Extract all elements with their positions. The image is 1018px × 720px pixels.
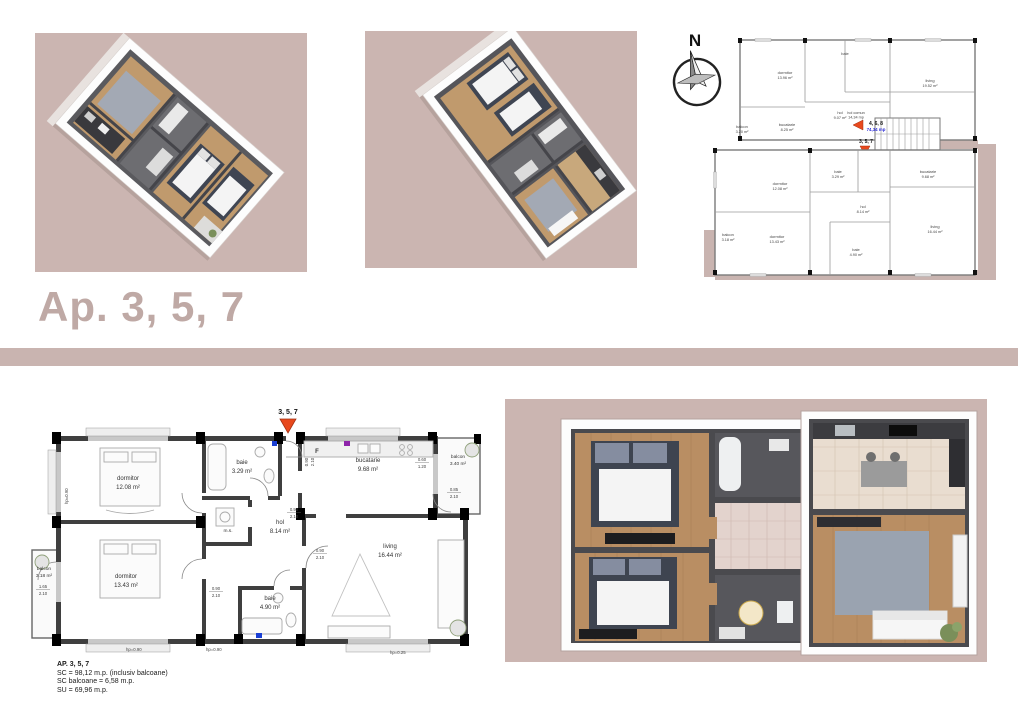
dim-width: 0.90	[290, 507, 299, 512]
site-key-plan: N	[660, 22, 1013, 290]
room-area: 19.52 m²	[923, 84, 939, 88]
dim-height: 2.10	[316, 555, 325, 560]
room-label: bucatarie	[920, 169, 937, 174]
render-3d-iso-2-canvas	[365, 31, 637, 268]
details-su: SU = 69,96 m.p.	[57, 687, 168, 696]
page-title: Ap. 3, 5, 7	[38, 283, 245, 331]
room-area: 16.44 m²	[378, 553, 402, 559]
room-label: baie	[834, 169, 842, 174]
room-label: baie	[852, 247, 860, 252]
room-area: 4.90 m²	[260, 605, 280, 611]
render-3d-top-canvas	[505, 399, 987, 662]
render-top-left-block	[561, 419, 809, 651]
balconies	[32, 438, 480, 638]
room-area: 3.18 m²	[722, 238, 736, 242]
room-label: dormitor	[773, 181, 788, 186]
dim-width: 0.60	[418, 457, 427, 462]
fridge-label: F	[315, 449, 319, 455]
parapet-note: hp=0.90	[206, 647, 222, 652]
site-key-plan-canvas: N	[660, 22, 1013, 290]
entrance-marker: 3, 5, 7	[278, 409, 298, 433]
details-sc-balcoane: SC balcoane = 6,58 m.p.	[57, 678, 168, 687]
dim-height: 1.20	[418, 464, 427, 469]
room-label: balcon	[722, 232, 734, 237]
render-top-right-block	[801, 411, 977, 655]
details-sc: SC = 98,12 m.p. (inclusiv balcoane)	[57, 670, 168, 679]
room-area: 12.08 m²	[116, 485, 140, 491]
room-area: 3.18 m²	[36, 573, 53, 579]
unit-357-id: 3, 5, 7	[859, 139, 873, 145]
common-hall-area: 14,34 mp	[848, 116, 864, 120]
entrance-label: 3, 5, 7	[278, 409, 298, 416]
electrical-panel-mark	[344, 441, 350, 446]
room-area: 3.40 m²	[450, 461, 467, 467]
dim-height: 2.10	[212, 593, 221, 598]
room-label: hol	[276, 520, 284, 526]
entrance-arrow-icon	[280, 419, 296, 433]
parapet-note: hp=0.90	[126, 647, 142, 652]
lower-unit-plan: dormitor 12.08 m² baie 3.29 m² bucatarie…	[713, 148, 977, 277]
dim-height: 2.10	[450, 494, 459, 499]
stair-core	[875, 118, 940, 150]
compass-north-icon: N	[668, 31, 724, 109]
floor-plan-2d-canvas: 3, 5, 7	[28, 392, 493, 664]
details-title: AP. 3, 5, 7	[57, 661, 168, 670]
render-3d-top	[505, 399, 987, 662]
floor-plan-2d: 3, 5, 7	[28, 392, 493, 664]
room-label: balcon	[37, 566, 51, 572]
room-label: dormitor	[117, 476, 139, 482]
dim-height: 2.10	[310, 457, 315, 466]
room-area: 12.08 m²	[773, 187, 789, 191]
room-area: 9.68 m²	[922, 175, 936, 179]
room-area: 9.07 m²	[834, 116, 848, 120]
room-label: m.s.	[223, 529, 232, 534]
room-label: baie	[236, 460, 248, 466]
room-label: living	[383, 544, 397, 550]
room-label: living	[930, 224, 939, 229]
room-area: 13.43 m²	[770, 240, 786, 244]
room-label: dormitor	[770, 234, 785, 239]
dim-width: 1.65	[39, 584, 48, 589]
parapet-note: hp=0.90	[64, 488, 69, 504]
room-label: dormitor	[778, 70, 793, 75]
room-label: bucatarie	[779, 122, 796, 127]
room-label: balcon	[451, 454, 465, 460]
room-label: living	[925, 78, 934, 83]
room-area: 3.29 m²	[232, 469, 252, 475]
common-hall-label: hol comun	[847, 111, 865, 115]
room-area: 16.44 m²	[928, 230, 944, 234]
room-area: 3.20 m²	[736, 130, 750, 134]
dim-width: 0.90	[212, 586, 221, 591]
room-area: 13.43 m²	[114, 583, 138, 589]
compass-n-label: N	[689, 31, 701, 50]
dim-width: 0.85	[450, 487, 459, 492]
room-label: dormitor	[115, 574, 137, 580]
brochure-page: N	[0, 0, 1018, 720]
divider-bar	[0, 348, 1018, 366]
room-label: baie	[841, 51, 849, 56]
room-area: 3.29 m²	[832, 175, 846, 179]
room-label: bucatarie	[356, 458, 381, 464]
unit-468-area: 74,34 mp	[867, 127, 886, 132]
room-label: hol	[860, 204, 865, 209]
room-area: 13.96 m²	[778, 76, 794, 80]
dim-height: 2.10	[290, 514, 299, 519]
parapet-note: hp=0.25	[390, 650, 406, 655]
room-area: 4.90 m²	[850, 253, 864, 257]
room-label: hol	[837, 110, 842, 115]
vent-mark-bath1	[272, 441, 277, 446]
room-area: 8.14 m²	[857, 210, 871, 214]
render-3d-iso-1-canvas	[35, 33, 307, 272]
room-area: 8.25 m²	[781, 128, 795, 132]
render-3d-iso-2	[365, 31, 637, 268]
room-area: 8.14 m²	[270, 529, 290, 535]
room-area: 9.68 m²	[358, 467, 378, 473]
vent-mark-bath2	[256, 633, 262, 638]
area-details: AP. 3, 5, 7 SC = 98,12 m.p. (inclusiv ba…	[57, 661, 168, 695]
dim-width: 0.90	[316, 548, 325, 553]
room-label: balcon	[736, 124, 748, 129]
render-3d-iso-1	[35, 33, 307, 272]
dim-width: 0.90	[304, 457, 309, 466]
dim-height: 2.10	[39, 591, 48, 596]
furniture	[35, 441, 479, 638]
room-label: baie	[264, 596, 276, 602]
